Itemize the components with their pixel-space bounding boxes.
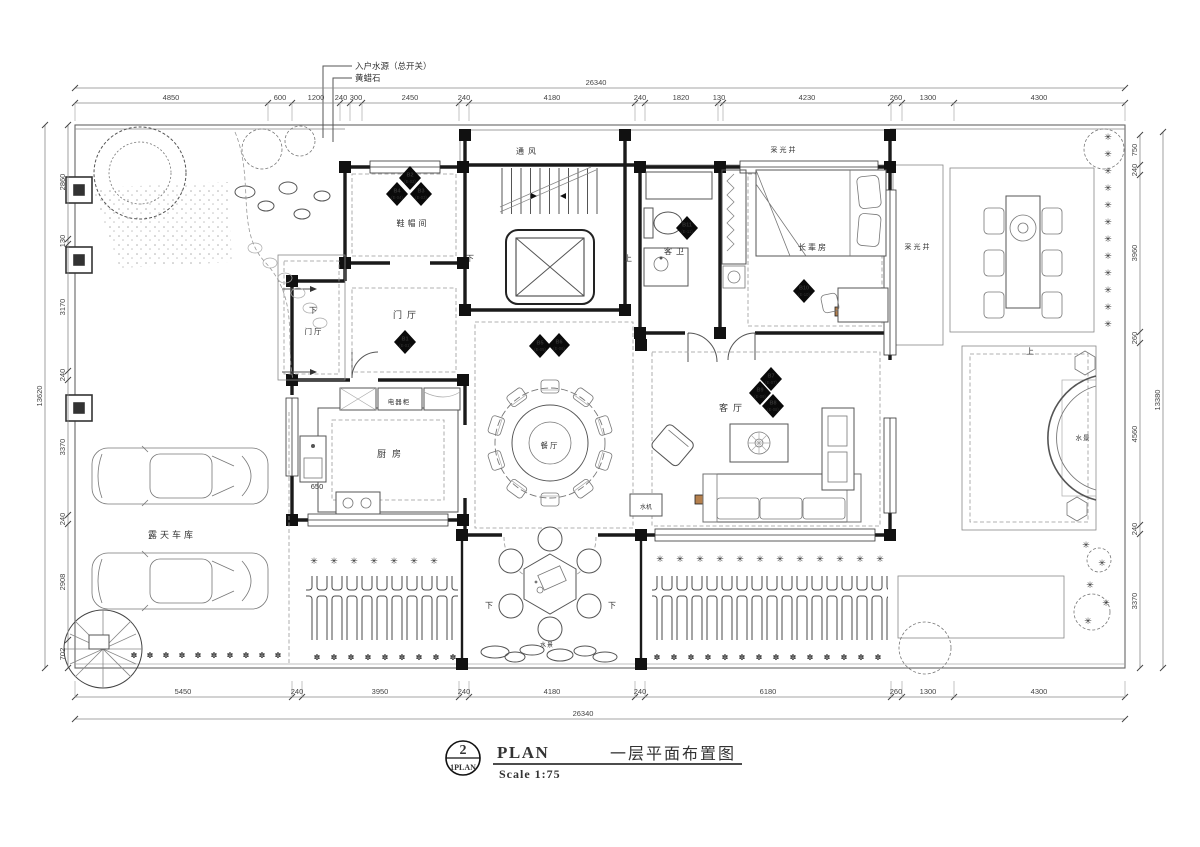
dim-label: 1200	[308, 93, 325, 102]
car-2	[92, 551, 268, 611]
svg-text:(E-03): (E-03)	[415, 195, 427, 200]
marker-B1: B1(E-01)	[394, 330, 416, 354]
label-room-entry-hall-2: 门厅	[305, 327, 324, 336]
plant-glyph: ✳	[1104, 234, 1112, 244]
dim-label: 260	[1130, 332, 1139, 345]
kitchen-sink	[300, 436, 326, 482]
plant-glyph: ✽	[382, 653, 389, 662]
label-step-down-porch: 下	[309, 306, 317, 315]
plant-glyph: ✳	[1104, 166, 1112, 176]
dim-label: 2860	[58, 174, 67, 191]
dim-label: 1820	[673, 93, 690, 102]
dim-label: 300	[350, 93, 363, 102]
svg-text:(E-11): (E-11)	[681, 229, 693, 234]
plant-glyph: ✽	[243, 651, 250, 660]
label-light-well-top: 采光井	[771, 145, 798, 154]
plant-glyph: ✳	[796, 554, 804, 564]
dim-label: 2908	[58, 574, 67, 591]
plant-glyph: ✽	[841, 653, 848, 662]
dim-label: 4180	[544, 687, 561, 696]
title-block: 2 1PLAN PLAN Scale 1:75 一层平面布置图	[446, 741, 742, 781]
svg-text:B5: B5	[536, 341, 543, 347]
plant-glyph: ✳	[1104, 302, 1112, 312]
dim-label: 130	[713, 93, 726, 102]
plant-glyph: ✳	[1082, 540, 1090, 550]
label-dim-kitchen-650: 650	[311, 482, 324, 491]
plant-glyph: ✳	[1084, 616, 1092, 626]
living-room-furniture	[630, 408, 861, 522]
plant-glyph: ✳	[656, 554, 664, 564]
light-well-hatch	[893, 165, 943, 345]
plant-glyph: ✽	[688, 653, 695, 662]
plant-glyph: ✳	[816, 554, 824, 564]
dim-label: 4300	[1031, 687, 1048, 696]
terrace	[481, 527, 617, 662]
dim-label: 702	[58, 648, 67, 661]
plant-glyph: ✽	[211, 651, 218, 660]
plant-glyph: ✳	[1098, 558, 1106, 568]
detail-ref: 1PLAN	[450, 763, 476, 772]
dim-label: 4180	[544, 93, 561, 102]
annotation-leaders	[323, 66, 352, 142]
svg-text:B1: B1	[401, 337, 408, 343]
plant-glyph: ✳	[776, 554, 784, 564]
svg-text:B4: B4	[393, 189, 401, 195]
plant-glyph: ✳	[716, 554, 724, 564]
plant-symbols: ✳✳✳✳✳✳✳✳✳✳✳✳✳✳✳✳✳✳✳✽✽✽✽✽✽✽✽✽✽✽✽✽✽✽✽✽✽✽✽✽…	[131, 132, 1113, 662]
coffee-table	[730, 424, 788, 462]
label-light-well-right: 采光井	[905, 242, 932, 251]
dim-label: 240	[335, 93, 348, 102]
plant-glyph: ✽	[807, 653, 814, 662]
marker-B10: B10(E-10)	[793, 279, 815, 303]
plant-glyph: ✽	[163, 651, 170, 660]
plant-glyph: ✽	[756, 653, 763, 662]
dim-label: 3370	[58, 439, 67, 456]
dim-total-top: 26340	[586, 78, 607, 87]
plant-glyph: ✳	[1104, 268, 1112, 278]
plant-glyph: ✽	[314, 653, 321, 662]
plant-glyph: ✳	[876, 554, 884, 564]
plant-glyph: ✽	[671, 653, 678, 662]
plant-glyph: ✳	[676, 554, 684, 564]
plant-glyph: ✽	[858, 653, 865, 662]
svg-text:(E-10): (E-10)	[798, 292, 810, 297]
svg-text:(E-06): (E-06)	[553, 346, 565, 351]
hex-planter-2	[1067, 497, 1087, 521]
marker-B5: B5(E-05)	[529, 334, 551, 358]
svg-text:(E-02): (E-02)	[404, 179, 416, 184]
plant-glyph: ✽	[179, 651, 186, 660]
dimension-lines: 4850600120024030024502404180240182013042…	[35, 78, 1166, 722]
dim-total-left: 13620	[35, 386, 44, 407]
label-annotation-water-source: 入户水源（总开关）	[355, 61, 432, 71]
plant-glyph: ✳	[430, 556, 438, 566]
detail-number: 2	[460, 743, 467, 758]
label-step-down-terrace-right: 下	[608, 601, 616, 610]
plant-glyph: ✽	[875, 653, 882, 662]
svg-text:(E-09): (E-09)	[754, 394, 766, 399]
dim-label: 1300	[920, 687, 937, 696]
label-stair-down: 下	[466, 254, 474, 263]
label-room-kitchen: 厨房	[377, 448, 407, 459]
label-shaft-vent: 通风	[516, 146, 540, 156]
dim-label: 600	[274, 93, 287, 102]
dim-label: 3170	[58, 299, 67, 316]
planter-slats-right	[652, 576, 888, 640]
label-room-carport: 露天车库	[148, 529, 196, 540]
plant-glyph: ✽	[773, 653, 780, 662]
label-stair-up: 上	[624, 254, 632, 263]
plant-glyph: ✽	[259, 651, 266, 660]
svg-text:B6: B6	[555, 340, 562, 346]
plant-glyph: ✳	[390, 556, 398, 566]
dim-label: 750	[1130, 144, 1139, 157]
sheet-title-cn: 一层平面布置图	[610, 745, 736, 763]
hex-table	[524, 554, 576, 614]
dim-label: 4560	[1130, 426, 1139, 443]
plant-glyph: ✽	[433, 653, 440, 662]
dim-label: 240	[58, 513, 67, 526]
plant-glyph: ✽	[348, 653, 355, 662]
planter-slats-left	[306, 576, 458, 640]
dim-total-right: 13380	[1153, 390, 1162, 411]
plant-glyph: ✽	[739, 653, 746, 662]
svg-text:(E-08): (E-08)	[767, 407, 779, 412]
plant-glyph: ✳	[1104, 149, 1112, 159]
dim-label: 240	[634, 93, 647, 102]
plant-glyph: ✳	[1086, 580, 1094, 590]
label-step-down-terrace-left: 下	[485, 601, 493, 610]
plant-glyph: ✽	[227, 651, 234, 660]
label-cabinet-appliance: 电器柜	[388, 397, 411, 406]
dim-label: 240	[458, 687, 471, 696]
right-garden	[984, 196, 1095, 521]
text-labels: 鞋帽间门厅门厅厨房电器柜餐厅客厅客卫长辈房通风采光井采光井露天车库水景水景水机6…	[148, 61, 1091, 649]
bush-1	[242, 129, 282, 169]
dim-label: 3950	[372, 687, 389, 696]
svg-text:B9: B9	[756, 388, 763, 394]
dim-label: 3370	[1130, 593, 1139, 610]
dim-label: 240	[1130, 523, 1139, 536]
plant-glyph: ✽	[331, 653, 338, 662]
plant-glyph: ✽	[275, 651, 282, 660]
elevator	[506, 230, 594, 304]
svg-text:(E-01): (E-01)	[399, 343, 411, 348]
plant-glyph: ✳	[756, 554, 764, 564]
dim-label: 4230	[799, 93, 816, 102]
armchair	[650, 423, 695, 468]
svg-text:(E-07): (E-07)	[765, 380, 777, 385]
plant-glyph: ✽	[824, 653, 831, 662]
plant-glyph: ✽	[450, 653, 457, 662]
washer	[646, 172, 712, 199]
dim-label: 130	[58, 235, 67, 248]
dim-label: 5450	[175, 687, 192, 696]
plant-glyph: ✳	[1104, 183, 1112, 193]
car-1	[92, 446, 268, 506]
svg-text:B2: B2	[406, 173, 413, 179]
svg-text:B7: B7	[767, 374, 774, 380]
outdoor-table	[1006, 196, 1040, 308]
plant-glyph: ✳	[350, 556, 358, 566]
plant-glyph: ✳	[330, 556, 338, 566]
svg-text:B10: B10	[799, 286, 809, 292]
dim-label: 240	[1130, 164, 1139, 177]
plant-glyph: ✳	[856, 554, 864, 564]
dim-label: 260	[890, 687, 903, 696]
bush-2	[285, 126, 315, 156]
dim-label: 1300	[920, 93, 937, 102]
svg-text:B11: B11	[682, 223, 692, 229]
floor-plan-sheet: 4850600120024030024502404180240182013042…	[0, 0, 1200, 847]
tv-cabinet	[822, 408, 854, 490]
plant-glyph: ✳	[370, 556, 378, 566]
label-room-entry-hall: 门厅	[393, 309, 421, 320]
plant-glyph: ✽	[705, 653, 712, 662]
svg-text:B3: B3	[417, 189, 424, 195]
pergola-columns	[66, 177, 92, 421]
label-room-guest-bath: 客卫	[664, 246, 688, 256]
plant-glyph: ✽	[722, 653, 729, 662]
label-room-elder-bedroom: 长辈房	[798, 242, 828, 252]
plant-glyph: ✳	[1104, 200, 1112, 210]
plant-glyph: ✽	[790, 653, 797, 662]
wardrobe	[722, 170, 746, 288]
plant-glyph: ✳	[1104, 251, 1112, 261]
svg-text:(E-05): (E-05)	[534, 347, 546, 352]
stair	[500, 167, 597, 214]
plant-glyph: ✽	[416, 653, 423, 662]
label-water-feature-right: 水景	[1076, 433, 1091, 442]
svg-text:(E-04): (E-04)	[391, 195, 403, 200]
plant-glyph: ✳	[696, 554, 704, 564]
dim-label: 240	[634, 687, 647, 696]
plant-glyph: ✽	[365, 653, 372, 662]
label-water-feature-bottom: 水景	[540, 641, 554, 649]
sheet-title-en: PLAN	[497, 743, 549, 762]
sheet-scale: Scale 1:75	[499, 767, 561, 781]
site-boundary	[75, 125, 1125, 668]
dim-total-bottom: 26340	[573, 709, 594, 718]
dim-label: 2450	[402, 93, 419, 102]
plant-glyph: ✽	[654, 653, 661, 662]
rocks	[235, 182, 330, 219]
label-room-shoe: 鞋帽间	[397, 218, 430, 228]
plant-glyph: ✽	[399, 653, 406, 662]
label-room-dining: 餐厅	[541, 441, 560, 450]
plant-glyph: ✽	[195, 651, 202, 660]
desk	[820, 288, 888, 322]
hex-planter-1	[1075, 351, 1095, 375]
label-room-living: 客厅	[719, 402, 747, 413]
plant-glyph: ✳	[410, 556, 418, 566]
dim-label: 3960	[1130, 245, 1139, 262]
dim-label: 4850	[163, 93, 180, 102]
dim-label: 6180	[760, 687, 777, 696]
plant-glyph: ✳	[736, 554, 744, 564]
lattice-border	[970, 354, 1088, 522]
tree-bottom-left	[64, 610, 142, 688]
dim-label: 240	[458, 93, 471, 102]
marker-B4: B4(E-04)	[386, 182, 408, 206]
plant-glyph: ✳	[310, 556, 318, 566]
plant-glyph: ✳	[1104, 217, 1112, 227]
label-step-up-right-garden: 上	[1026, 347, 1034, 356]
plant-glyph: ✳	[836, 554, 844, 564]
label-annotation-yellow-wax-stone: 黄蜡石	[355, 73, 381, 83]
marker-B6: B6(E-06)	[548, 333, 570, 357]
dim-label: 240	[58, 369, 67, 382]
plant-glyph: ✽	[131, 651, 138, 660]
label-water-machine: 水机	[640, 503, 652, 511]
floor-plan-drawing: 4850600120024030024502404180240182013042…	[0, 0, 1200, 847]
plant-glyph: ✽	[147, 651, 154, 660]
dim-label: 260	[890, 93, 903, 102]
toilet	[644, 208, 682, 238]
stove	[336, 492, 380, 514]
svg-text:B8: B8	[769, 401, 776, 407]
dim-label: 4300	[1031, 93, 1048, 102]
plant-glyph: ✳	[1102, 598, 1110, 608]
plant-glyph: ✳	[1104, 285, 1112, 295]
plant-glyph: ✳	[1104, 319, 1112, 329]
paving-strip	[898, 576, 1064, 638]
dim-label: 240	[291, 687, 304, 696]
plant-glyph: ✳	[1104, 132, 1112, 142]
